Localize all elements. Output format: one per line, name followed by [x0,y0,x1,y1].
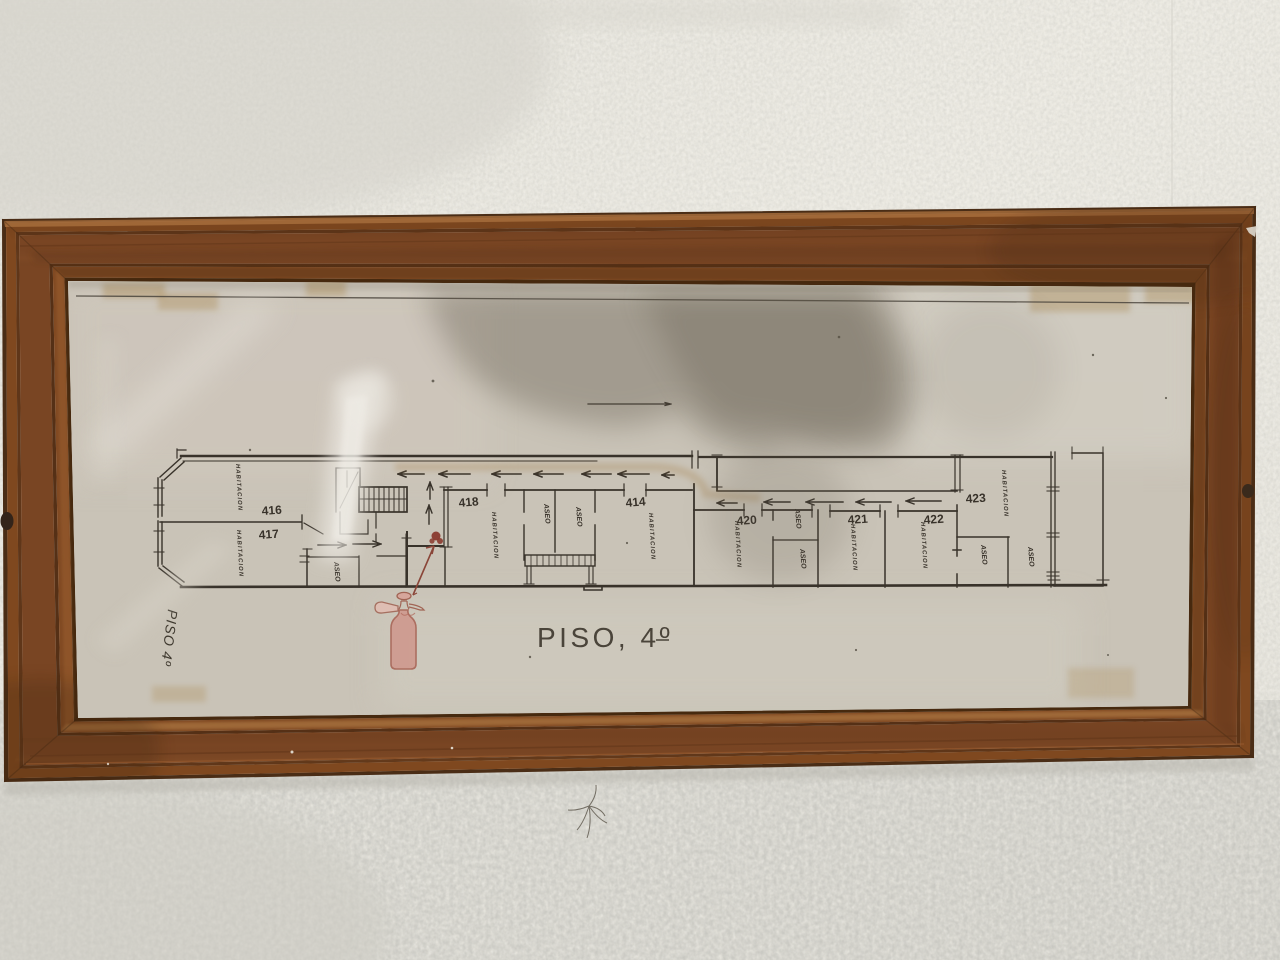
svg-text:PISO, 4º: PISO, 4º [537,622,673,653]
svg-text:418: 418 [458,494,479,510]
svg-text:416: 416 [261,503,282,518]
svg-text:423: 423 [965,491,986,506]
svg-text:414: 414 [625,494,646,510]
svg-text:417: 417 [258,527,279,542]
svg-text:422: 422 [923,512,944,527]
